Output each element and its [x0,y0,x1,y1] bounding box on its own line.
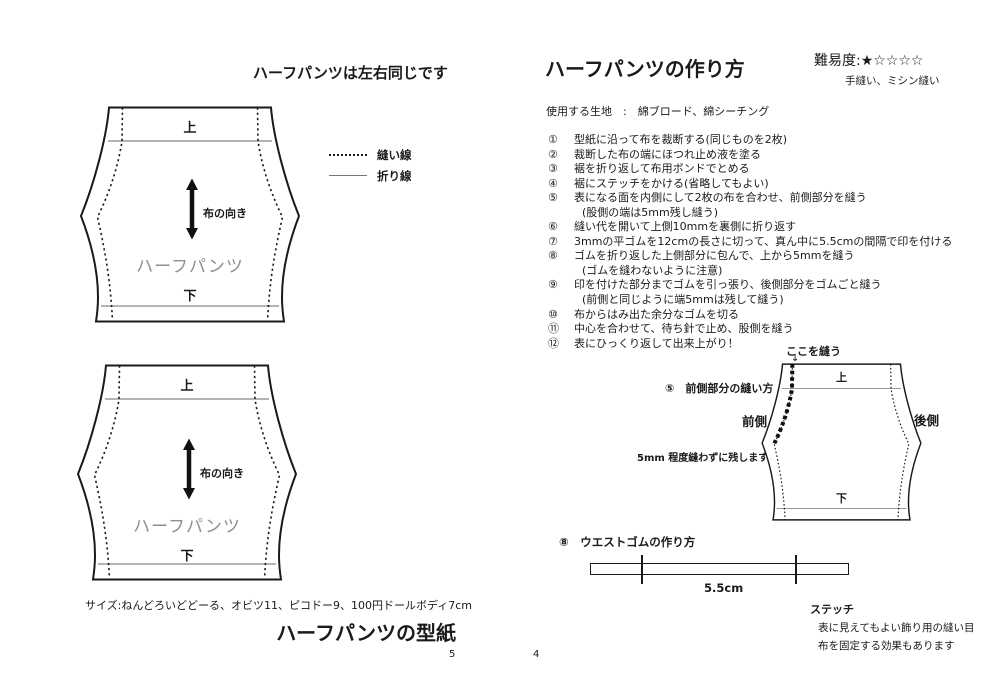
grain-direction-label: 布の向き [203,205,247,221]
step-text: 印を付けた部分までゴムを引っ張り、後側部分をゴムごと縫う [574,278,882,293]
instruction-step: ①型紙に沿って布を裁断する(同じものを2枚) [548,133,990,148]
instruction-step: ④裾にステッチをかける(省略してもよい) [548,177,990,192]
difficulty-stars: ★☆☆☆☆ [861,53,924,69]
fold-line-legend-label: 折り線 [377,168,412,184]
left-page-title: ハーフパンツの型紙 [170,617,456,646]
step-number: ② [548,148,574,163]
elastic-caption: ⑧ ウエストゴムの作り方 [559,534,695,550]
instruction-step: ⑧ゴムを折り返した上側部分に包んで、上から5mmを縫う [548,249,990,264]
step-text: 中心を合わせて、待ち針で止め、股側を縫う [574,322,793,337]
difficulty-rating: 難易度:★☆☆☆☆ [814,50,923,70]
step-text: 裾にステッチをかける(省略してもよい) [574,177,769,192]
instruction-step: ⑥縫い代を開いて上側10mmを裏側に折り返す [548,220,990,235]
step-text: 表になる面を内側にして2枚の布を合わせ、前側部分を縫う [574,191,867,206]
instruction-step: ③裾を折り返して布用ボンドでとめる [548,162,990,177]
difficulty-label: 難易度: [814,53,861,69]
step-text: 裁断した布の端にほつれ止め液を塗る [574,148,761,163]
elastic-length-label: 5.5cm [704,581,743,595]
instruction-step: ⑦3mmの平ゴムを12cmの長さに切って、真ん中に5.5cmの間隔で印を付ける [548,235,990,250]
grain-direction-arrow-icon [181,438,197,500]
pattern-bottom-label: 下 [77,545,297,564]
stitch-footnote-line: 布を固定する効果もあります [818,638,980,653]
step-number: ⑧ [548,249,574,264]
stitch-footnote: ステッチ 表に見えてもよい飾り用の縫い目 布を固定する効果もあります [810,601,980,653]
instruction-step: ⑫表にひっくり返して出来上がり！ [548,337,990,352]
step-text: 表にひっくり返して出来上がり！ [574,337,739,352]
pattern-top-label: 上 [77,375,297,394]
pattern-name-label: ハーフパンツ [80,252,300,277]
step-number: ⑫ [548,337,574,352]
left-page-note: ハーフパンツは左右同じです [253,62,448,83]
step-number: ① [548,133,574,148]
step-number: ⑦ [548,235,574,250]
fabric-note: 使用する生地 : 綿ブロード、綿シーチング [546,103,769,119]
step-number: ⑨ [548,278,574,293]
step-subnote: (股側の端は5mm残し縫う) [582,206,990,221]
step-text: 型紙に沿って布を裁断する(同じものを2枚) [574,133,787,148]
diagram-top-label: 上 [761,369,922,385]
grain-direction-arrow-icon [184,178,200,240]
instruction-list: ①型紙に沿って布を裁断する(同じものを2枚) ②裁断した布の端にほつれ止め液を塗… [548,133,990,351]
grain-direction-label: 布の向き [200,465,244,481]
instruction-step: ⑤表になる面を内側にして2枚の布を合わせ、前側部分を縫う [548,191,990,206]
step-text: 裾を折り返して布用ボンドでとめる [574,162,750,177]
instruction-step: ⑨印を付けた部分までゴムを引っ張り、後側部分をゴムごと縫う [548,278,990,293]
pattern-piece-1: 上 布の向き ハーフパンツ 下 [80,106,300,323]
elastic-mark-tick [795,555,797,584]
step-number: ⑩ [548,308,574,323]
elastic-mark-tick [641,555,643,584]
instruction-step: ⑩布からはみ出た余分なゴムを切る [548,308,990,323]
front-sew-caption: ⑤ 前側部分の縫い方 [665,380,773,396]
step-number: ④ [548,177,574,192]
sew-line-legend-label: 縫い線 [377,147,412,163]
pattern-name-label: ハーフパンツ [77,512,297,537]
instruction-step: ⑪中心を合わせて、待ち針で止め、股側を縫う [548,322,990,337]
elastic-band-diagram: 5.5cm [590,555,850,600]
step-number: ⑥ [548,220,574,235]
step-subnote: (前側と同じように端5mmは残して縫う) [582,293,990,308]
step-text: 布からはみ出た余分なゴムを切る [574,308,739,323]
pattern-bottom-label: 下 [80,285,300,304]
right-page-title: ハーフパンツの作り方 [545,53,745,82]
stitch-footnote-line: 表に見えてもよい飾り用の縫い目 [818,620,980,635]
pattern-sheet-spread: ハーフパンツは左右同じです 上 布の向き ハーフパンツ 下 縫い線 折り線 上 … [0,0,990,700]
size-note: サイズ:ねんどろいどどーる、オビツ11、ピコドー9、100円ドールボディ7cm [85,597,472,613]
fold-line-sample [329,175,367,176]
pattern-piece-2: 上 布の向き ハーフパンツ 下 [77,364,297,581]
right-page-number: 4 [533,649,539,660]
front-sew-diagram: 上 下 [761,363,922,521]
step-number: ③ [548,162,574,177]
step-number: ⑪ [548,322,574,337]
step-text: ゴムを折り返した上側部分に包んで、上から5mmを縫う [574,249,854,264]
step-text: 3mmの平ゴムを12cmの長さに切って、真ん中に5.5cmの間隔で印を付ける [574,235,952,250]
stitch-footnote-title: ステッチ [810,601,980,617]
sew-line-sample [329,154,367,156]
step-text: 縫い代を開いて上側10mmを裏側に折り返す [574,220,796,235]
diagram-bottom-label: 下 [761,490,922,506]
elastic-band [590,563,849,575]
instruction-step: ②裁断した布の端にほつれ止め液を塗る [548,148,990,163]
step-number: ⑤ [548,191,574,206]
step-subnote: (ゴムを縫わないように注意) [582,264,990,279]
sewing-methods-note: 手縫い、ミシン縫い [845,73,940,88]
pattern-top-label: 上 [80,117,300,136]
left-page-number: 5 [449,649,455,660]
